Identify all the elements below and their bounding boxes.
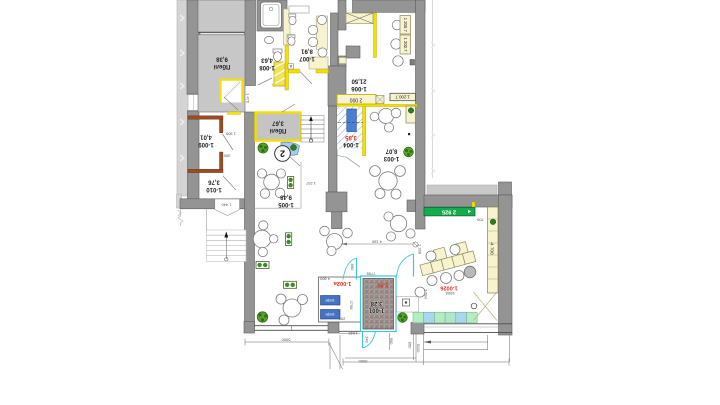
svg-text:шафи: шафи: [325, 299, 334, 303]
svg-text:1 298: 1 298: [418, 244, 423, 255]
svg-text:1 476: 1 476: [246, 93, 251, 104]
svg-text:8,91: 8,91: [301, 48, 313, 54]
svg-text:1-0026: 1-0026: [440, 285, 457, 291]
svg-text:1545: 1545: [348, 331, 358, 336]
svg-text:1 300: 1 300: [225, 132, 236, 137]
svg-text:700: 700: [476, 218, 483, 223]
svg-text:1 237: 1 237: [305, 181, 316, 186]
svg-text:4,63: 4,63: [261, 57, 273, 63]
svg-text:1-005: 1-005: [278, 201, 294, 207]
svg-text:21,50: 21,50: [351, 78, 367, 84]
svg-text:2758: 2758: [349, 301, 354, 311]
svg-text:1-004: 1-004: [343, 141, 359, 147]
svg-text:2 925: 2 925: [442, 209, 456, 215]
svg-text:340: 340: [365, 336, 370, 343]
svg-text:1 440: 1 440: [221, 202, 232, 207]
svg-text:-4 700: -4 700: [489, 241, 494, 254]
svg-text:1-003: 1-003: [383, 155, 399, 161]
svg-text:3,67: 3,67: [272, 120, 284, 126]
svg-text:1.200.7: 1.200.7: [395, 95, 410, 100]
svg-text:5000: 5000: [281, 337, 291, 342]
svg-text:1-009: 1-009: [198, 141, 214, 147]
svg-text:1 593: 1 593: [424, 289, 429, 300]
svg-text:4 180: 4 180: [371, 240, 382, 245]
svg-text:5110: 5110: [416, 344, 421, 353]
svg-text:5500: 5500: [358, 359, 368, 364]
svg-text:1-010: 1-010: [206, 186, 222, 192]
svg-text:9,38: 9,38: [216, 56, 228, 62]
svg-text:1-006: 1-006: [351, 85, 367, 91]
svg-text:Пбелі: Пбелі: [213, 63, 230, 70]
svg-text:4,01: 4,01: [200, 134, 212, 140]
svg-text:2: 2: [280, 149, 285, 159]
svg-text:1 200.7: 1 200.7: [403, 18, 408, 33]
svg-text:2 000: 2 000: [350, 96, 363, 102]
svg-text:шафи: шафи: [325, 312, 334, 316]
svg-text:3,76: 3,76: [208, 179, 220, 185]
svg-text:1-007: 1-007: [299, 55, 315, 61]
svg-text:7798: 7798: [366, 272, 376, 277]
svg-text:3,85: 3,85: [345, 134, 357, 140]
svg-text:1-008: 1-008: [259, 64, 275, 70]
svg-text:1 200.7: 1 200.7: [403, 38, 408, 53]
svg-text:950: 950: [389, 338, 394, 345]
svg-text:4 800: 4 800: [319, 277, 330, 282]
svg-text:295: 295: [338, 317, 345, 322]
svg-text:1-001: 1-001: [368, 307, 384, 313]
svg-text:1-00: 1-00: [377, 282, 388, 288]
svg-text:300: 300: [223, 154, 230, 159]
svg-text:960: 960: [350, 264, 355, 271]
svg-text:8,07: 8,07: [385, 148, 397, 154]
svg-text:9,48: 9,48: [280, 194, 292, 200]
svg-text:3,28: 3,28: [370, 300, 382, 306]
svg-text:Пбелі: Пбелі: [269, 127, 286, 134]
svg-text:6008: 6008: [445, 291, 455, 296]
svg-text:950: 950: [408, 342, 413, 349]
svg-text:1-002a: 1-002a: [333, 280, 351, 286]
